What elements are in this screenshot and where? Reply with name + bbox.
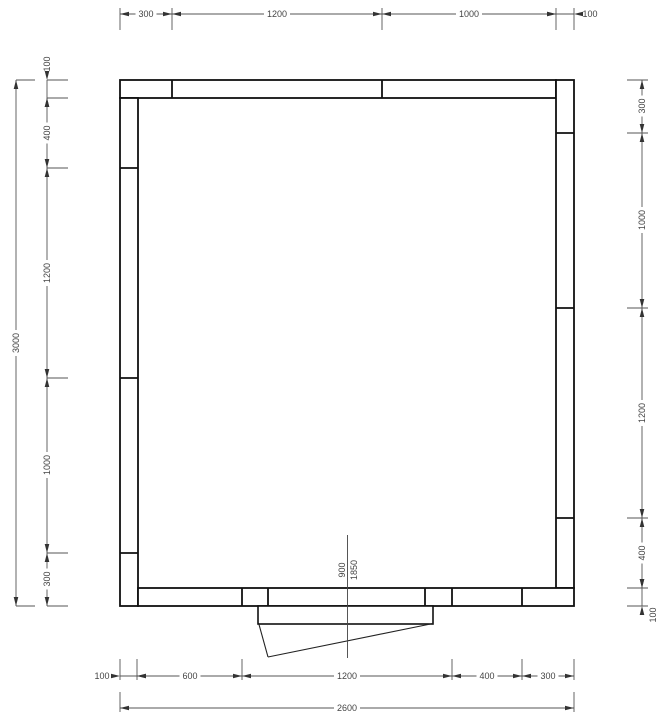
dim-label: 100 — [582, 9, 597, 19]
dim-label: 100 — [648, 607, 658, 622]
walls — [120, 80, 574, 606]
door-leaf-edge — [259, 625, 268, 658]
dimension-arrow — [14, 597, 19, 606]
dimension-arrow — [14, 80, 19, 89]
wall-left — [120, 98, 138, 606]
dim-label: 1000 — [459, 9, 479, 19]
dimension-arrow — [640, 509, 645, 518]
dimension-arrow — [45, 597, 50, 606]
dimension-arrow — [640, 308, 645, 317]
dim-label: 400 — [479, 671, 494, 681]
dim-label: 1200 — [637, 403, 647, 423]
dimension-arrow — [522, 674, 531, 679]
door-threshold — [258, 606, 433, 624]
wall-right — [556, 80, 574, 588]
door-height-label: 1850 — [349, 560, 359, 580]
dim-label: 300 — [42, 571, 52, 586]
dim-label: 300 — [138, 9, 153, 19]
dim-overall-left: 3000 — [11, 80, 35, 606]
door-leaf — [268, 624, 433, 658]
dimension-arrow — [45, 553, 50, 562]
dimension-arrow — [382, 12, 391, 17]
dimension-arrow — [45, 159, 50, 168]
dim-label: 2600 — [337, 703, 357, 713]
dim-label: 400 — [637, 545, 647, 560]
dim-chain-top: 30012001000100 — [120, 8, 598, 30]
dimension-arrow — [120, 12, 129, 17]
dimension-arrow — [120, 706, 129, 711]
dimension-arrow — [640, 299, 645, 308]
dimension-arrow — [640, 124, 645, 133]
dim-label: 1000 — [42, 455, 52, 475]
door-width-label: 900 — [337, 562, 347, 577]
wall-top — [120, 80, 556, 98]
dim-chain-right: 30010001200400100 — [627, 80, 658, 623]
dimension-arrow — [443, 674, 452, 679]
dimension-arrow — [45, 544, 50, 553]
dim-label: 3000 — [11, 333, 21, 353]
dim-overall-bottom: 2600 — [120, 692, 574, 713]
dim-label: 1200 — [337, 671, 357, 681]
dim-label: 400 — [42, 125, 52, 140]
dimension-arrow — [547, 12, 556, 17]
dimension-arrow — [172, 12, 181, 17]
dimension-arrow — [565, 674, 574, 679]
dimension-arrow — [640, 518, 645, 527]
dimension-arrow — [45, 378, 50, 387]
dimension-arrow — [137, 674, 146, 679]
dim-label: 1200 — [267, 9, 287, 19]
dim-label: 600 — [182, 671, 197, 681]
dim-label: 300 — [540, 671, 555, 681]
dimension-arrow — [640, 80, 645, 89]
dimension-arrow — [242, 674, 251, 679]
dimension-arrow — [373, 12, 382, 17]
dimension-arrow — [233, 674, 242, 679]
dimension-arrow — [640, 579, 645, 588]
dim-label: 300 — [637, 98, 647, 113]
dimension-arrow — [513, 674, 522, 679]
floor-plan-drawing: 900 1850 3001200100010030001004001200100… — [0, 0, 658, 720]
dimension-arrow — [45, 98, 50, 107]
dim-label: 1200 — [42, 263, 52, 283]
dimension-arrow — [163, 12, 172, 17]
dim-chain-bottom: 1006001200400300 — [94, 659, 574, 681]
dimension-arrow — [640, 133, 645, 142]
dim-label: 100 — [42, 56, 52, 71]
dim-chain-left: 10040012001000300 — [42, 56, 68, 606]
wall-bottom — [138, 588, 574, 606]
dim-label: 1000 — [637, 210, 647, 230]
dimension-arrow — [452, 674, 461, 679]
dimension-arrow — [45, 168, 50, 177]
dim-label: 100 — [94, 671, 109, 681]
dimension-arrow — [45, 369, 50, 378]
dimension-arrow — [111, 674, 120, 679]
dimension-arrow — [640, 606, 645, 615]
dimension-arrow — [565, 706, 574, 711]
